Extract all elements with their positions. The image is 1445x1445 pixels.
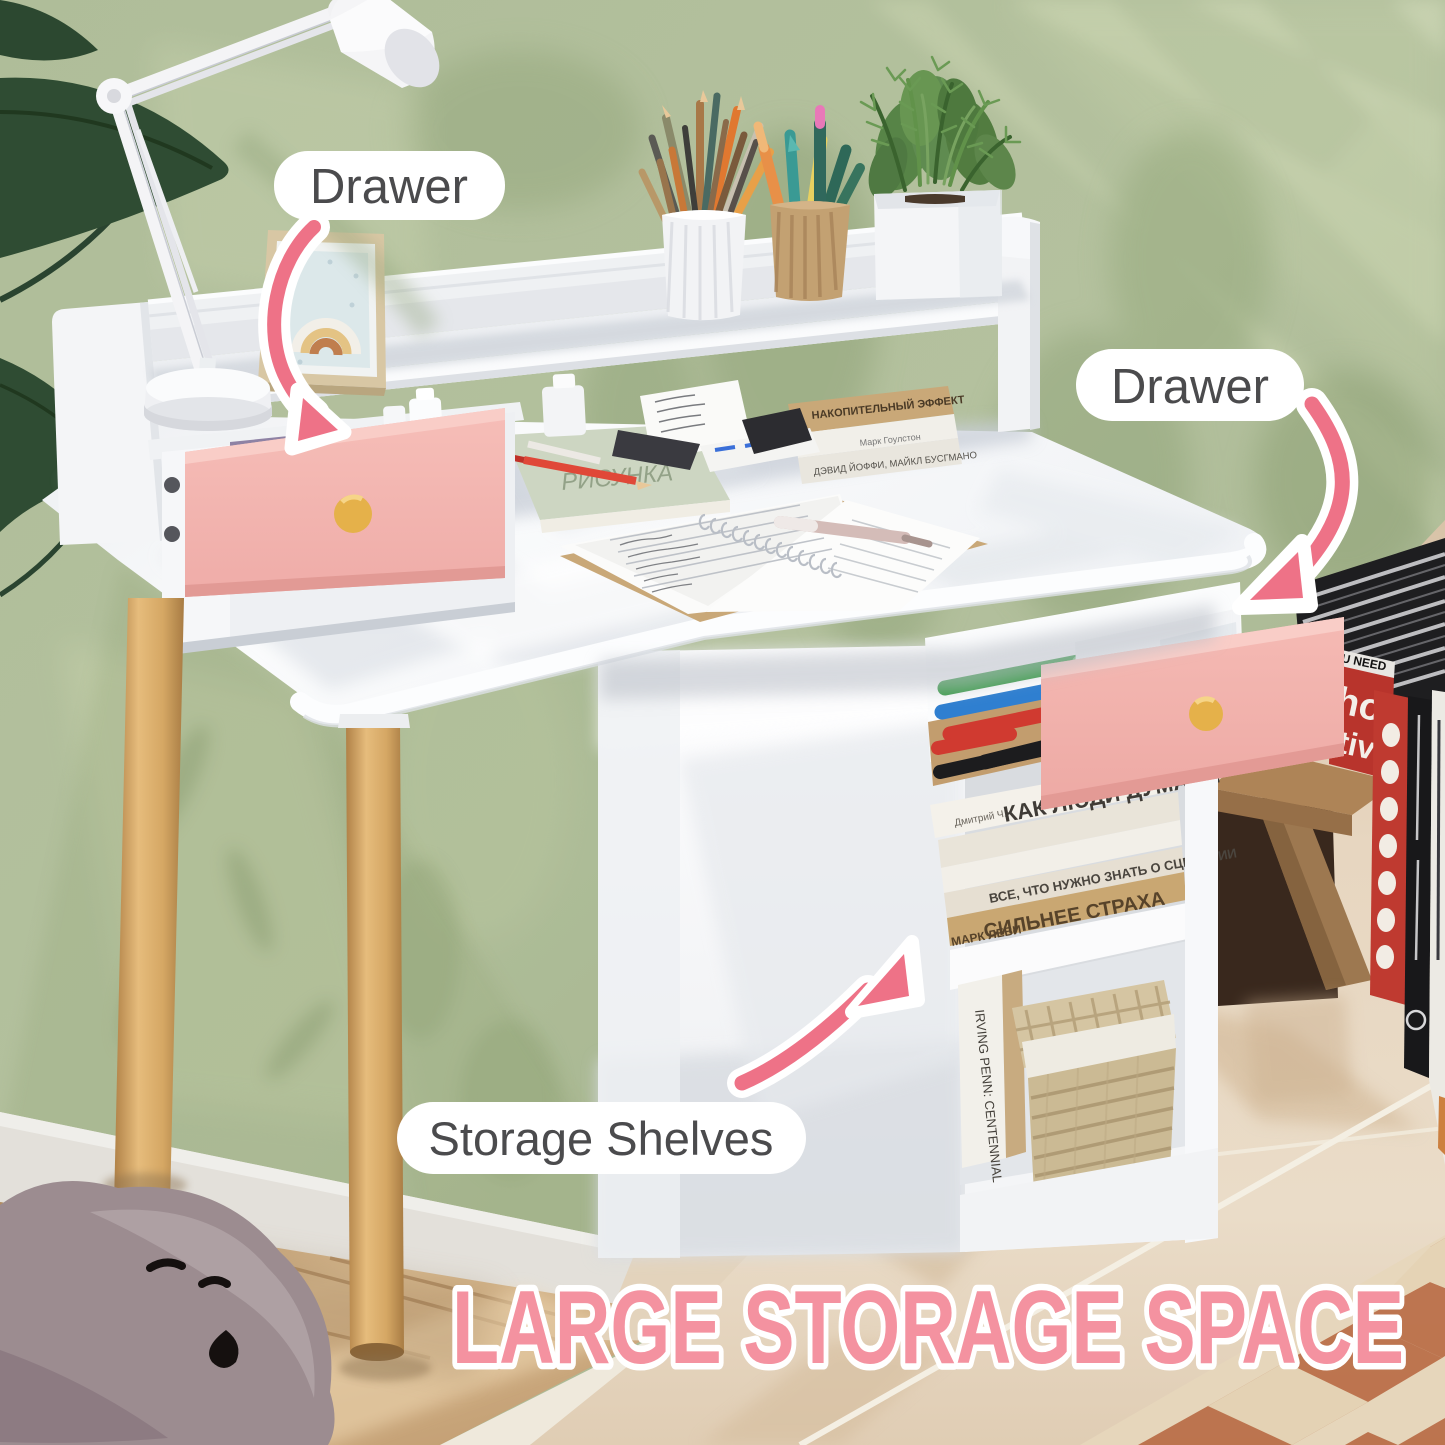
svg-text:Storage Shelves: Storage Shelves [429, 1112, 774, 1165]
svg-text:LARGE STORAGE SPACE: LARGE STORAGE SPACE [452, 1270, 1404, 1386]
svg-text:Drawer: Drawer [310, 160, 468, 214]
svg-text:Drawer: Drawer [1111, 360, 1269, 414]
